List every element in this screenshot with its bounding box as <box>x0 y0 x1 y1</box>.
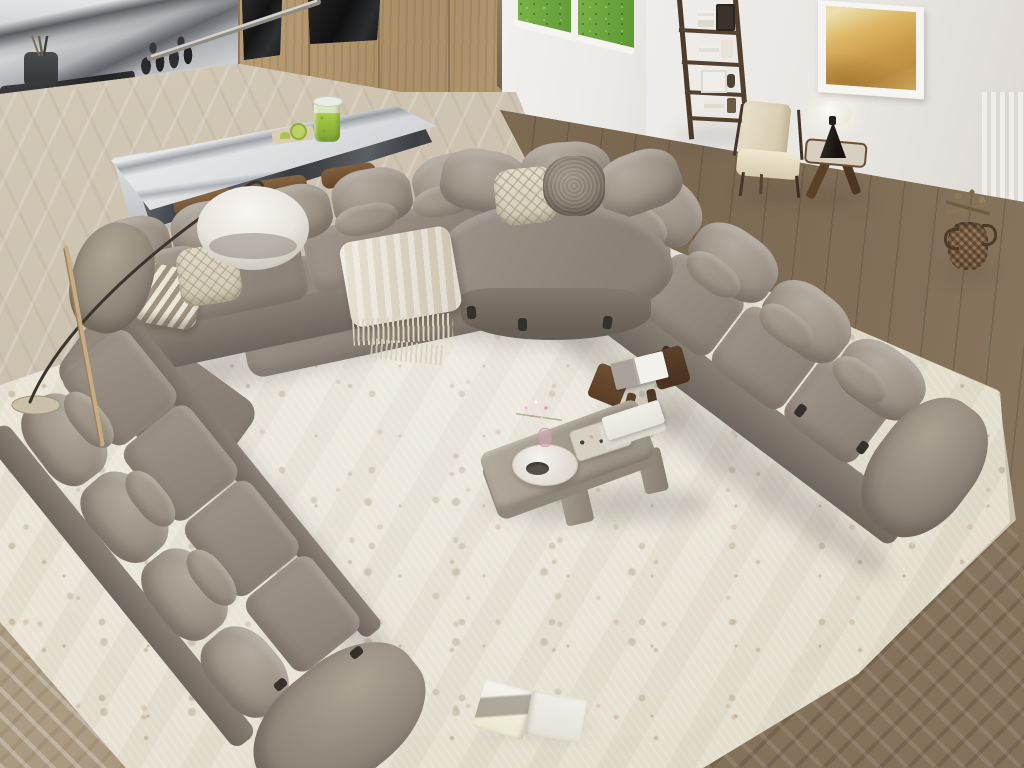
lime-wedge <box>280 132 290 139</box>
pillow-fuzzy-gray <box>543 156 605 216</box>
shelf-box-2 <box>721 40 733 58</box>
table-lamp-neck <box>829 116 836 125</box>
built-in-appliance-panel <box>242 0 284 60</box>
shelf-books-2 <box>699 44 719 59</box>
shelf-photo-frame <box>716 4 735 31</box>
basket-handle <box>944 228 959 250</box>
tray-dish <box>526 462 549 475</box>
sofa-foot <box>602 315 613 329</box>
sofa-corner-front-base <box>461 288 651 340</box>
utensil-sticks <box>28 36 54 56</box>
pillow-diamond-left <box>174 242 243 308</box>
built-in-oven-panel <box>308 0 382 46</box>
wall-art <box>826 6 916 90</box>
sofa-foot <box>466 306 476 320</box>
shelf-frame-3 <box>701 70 727 93</box>
shelf-book-stack-top <box>698 10 714 27</box>
shelf-item-4 <box>727 98 736 113</box>
accent-chair-seat <box>736 148 801 180</box>
drink-jar-rim <box>313 96 343 107</box>
sofa-corner-section <box>425 140 685 345</box>
window-mullion <box>571 0 578 42</box>
living-room-photo <box>0 0 1024 768</box>
sofa-foot <box>518 318 527 331</box>
lime-slice <box>290 123 307 140</box>
flower-cluster <box>516 396 562 438</box>
shelf-books-4 <box>704 100 724 113</box>
jar-leaf-specks <box>317 112 337 138</box>
shelf-vase-3 <box>727 74 735 88</box>
open-book-right-page <box>524 690 587 744</box>
